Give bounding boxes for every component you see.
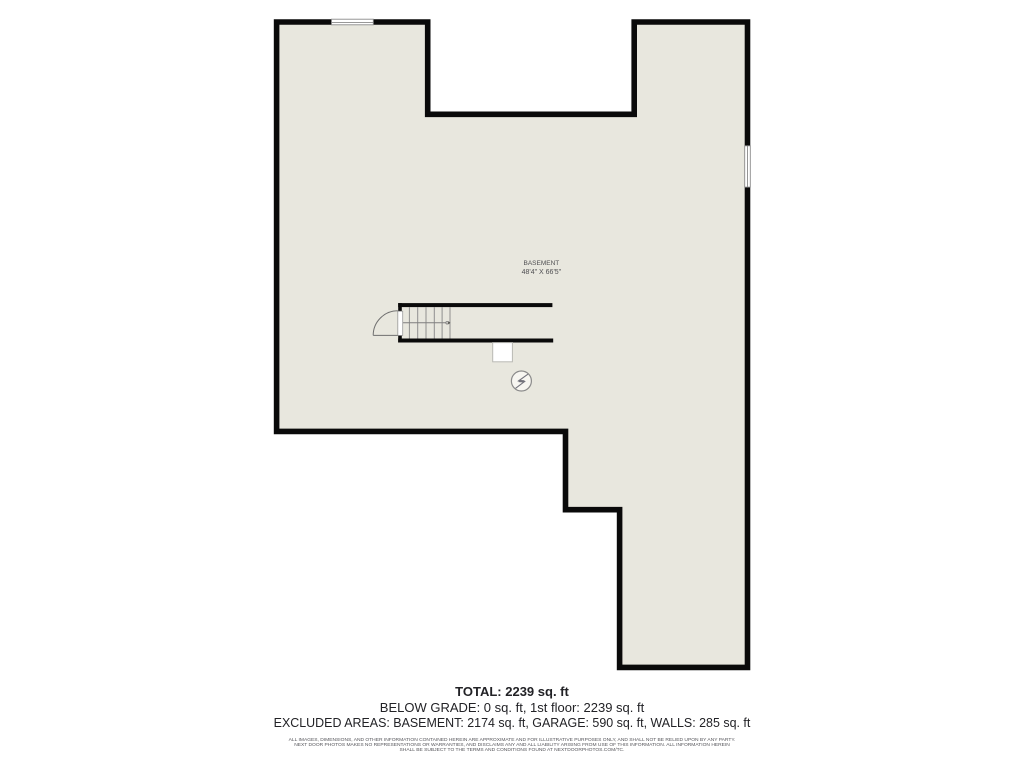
svg-text:48'4" X 66'5": 48'4" X 66'5"	[522, 269, 562, 276]
svg-text:BASEMENT: BASEMENT	[524, 260, 560, 267]
